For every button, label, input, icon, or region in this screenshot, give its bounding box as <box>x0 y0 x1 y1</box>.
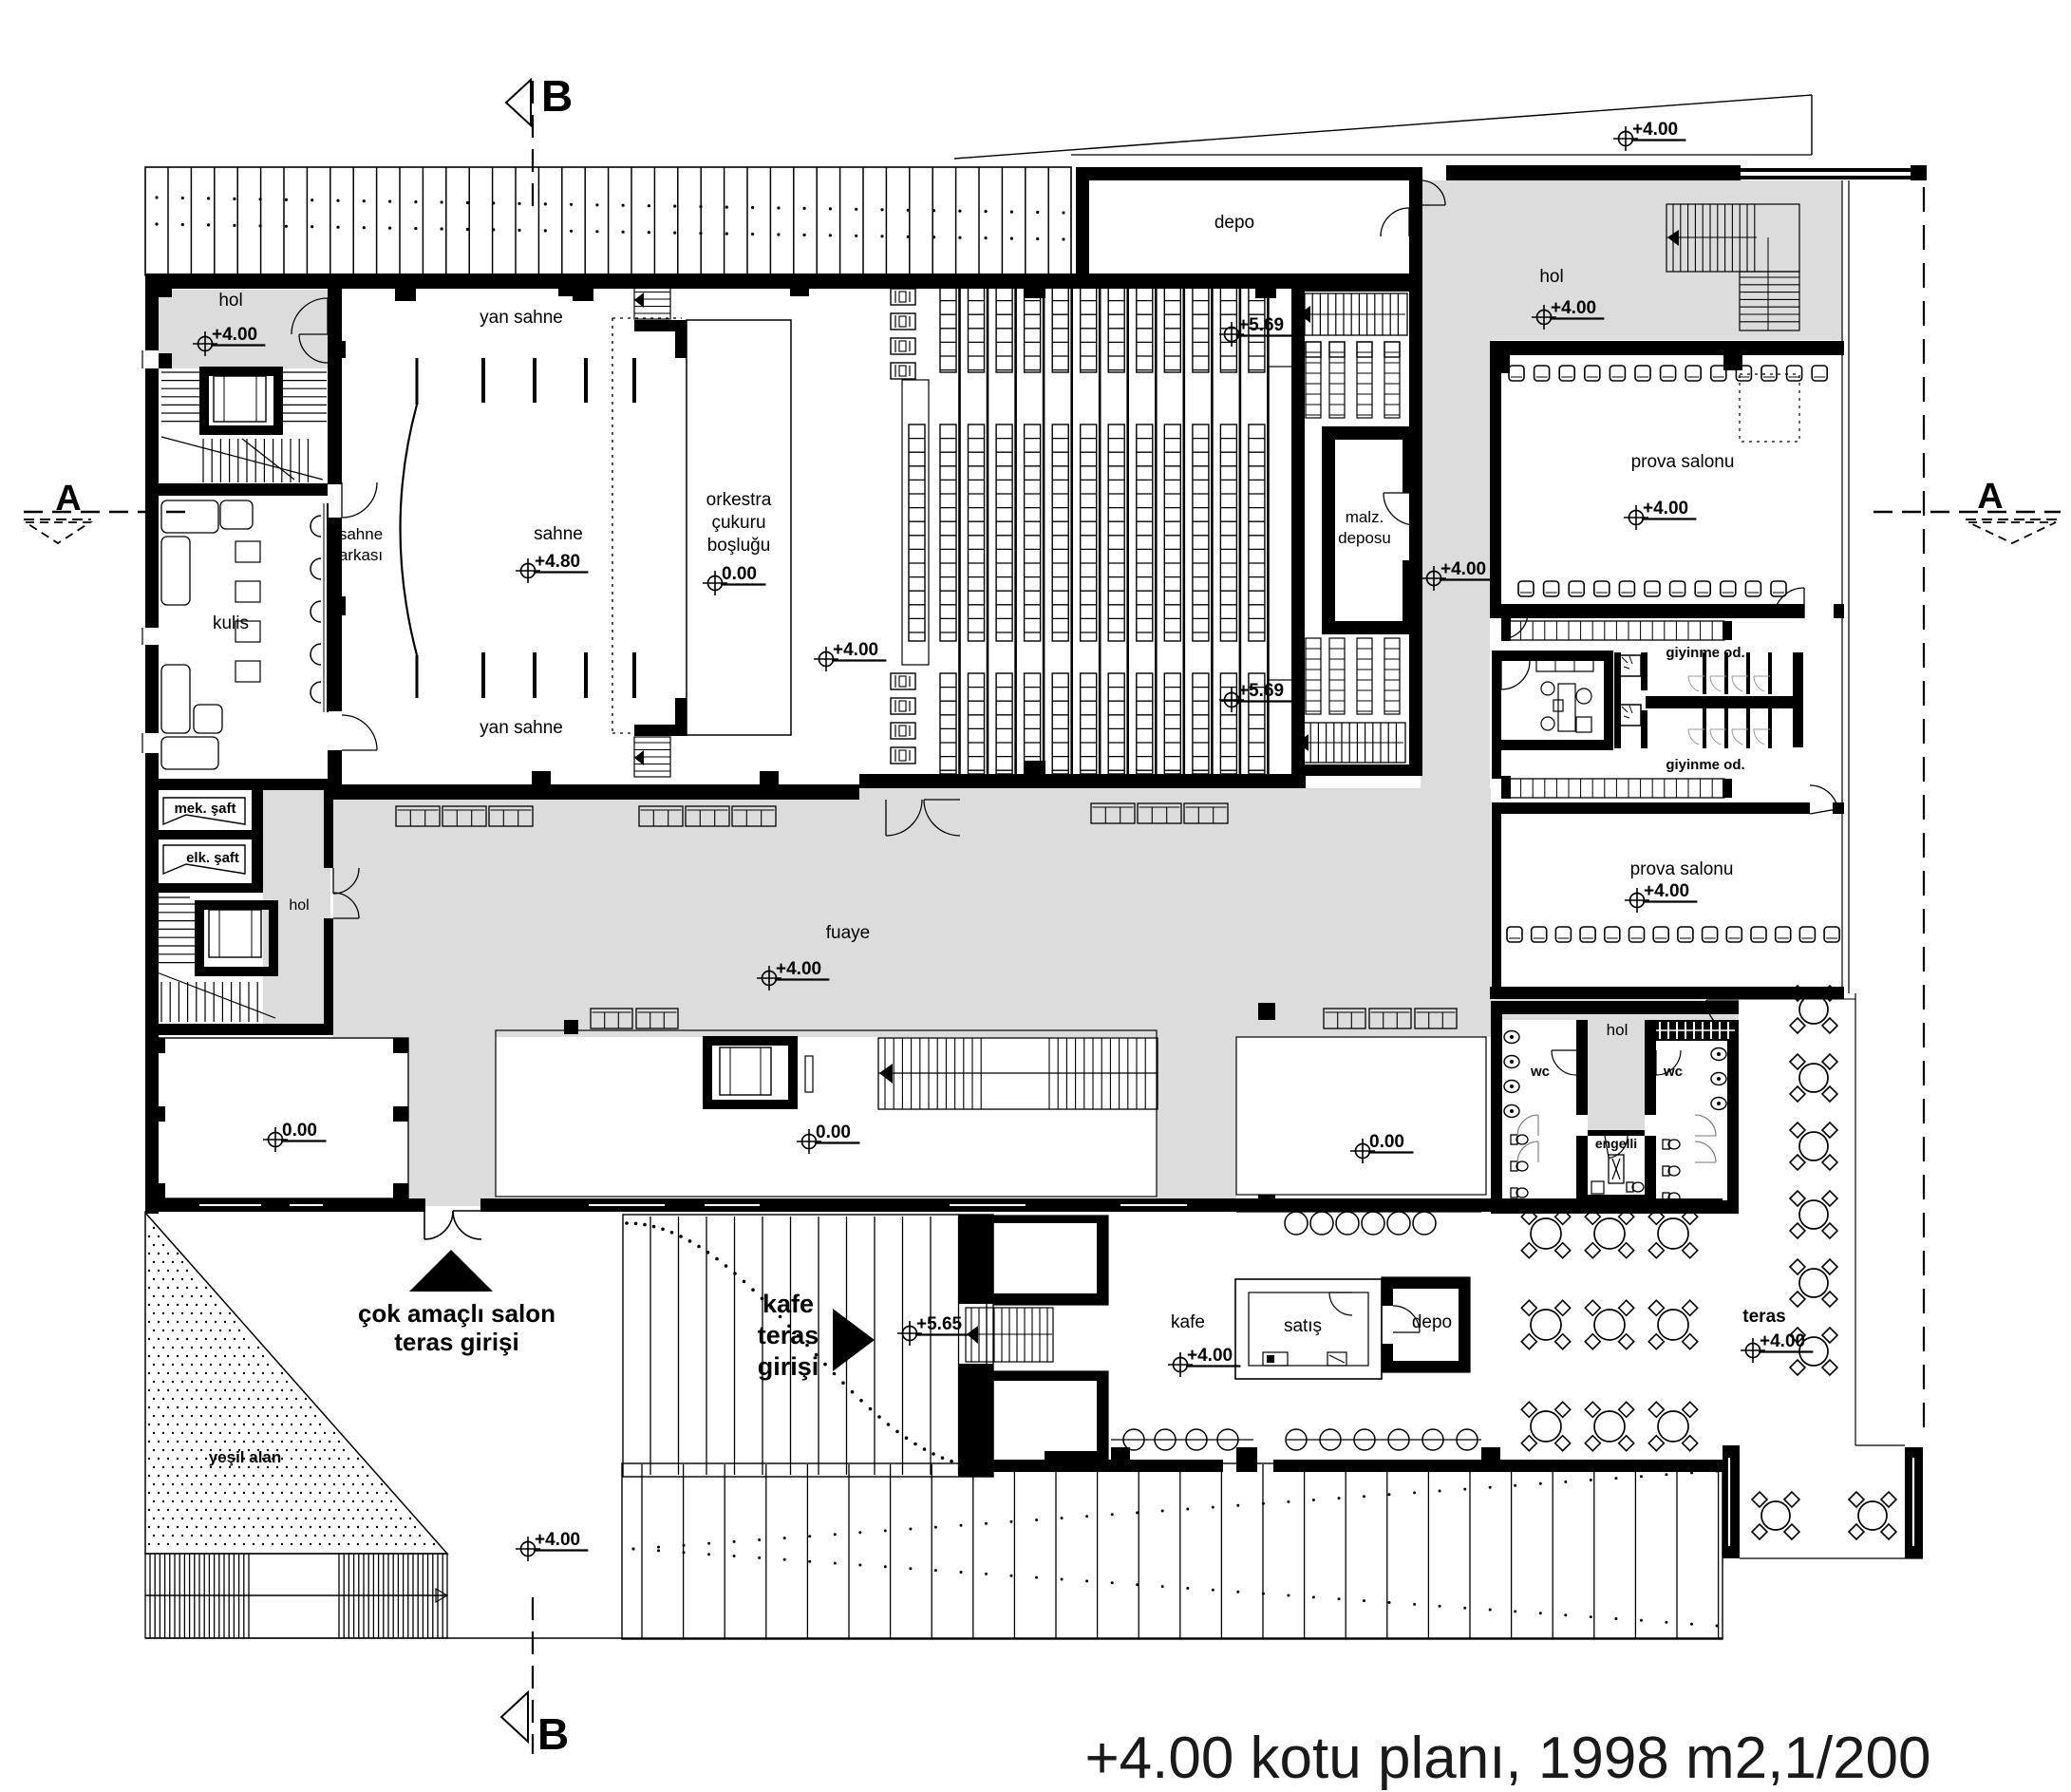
svg-text:depo: depo <box>1214 213 1254 233</box>
svg-text:sahne: sahne <box>339 525 383 543</box>
svg-text:yeşil alan: yeşil alan <box>209 1448 282 1466</box>
svg-text:prova salonu: prova salonu <box>1631 452 1735 472</box>
svg-text:boşluğu: boşluğu <box>707 536 771 556</box>
svg-text:+5.69: +5.69 <box>1238 315 1284 335</box>
svg-text:+4.00: +4.00 <box>1643 499 1688 519</box>
svg-text:+4.00: +4.00 <box>1632 120 1678 140</box>
svg-text:0.00: 0.00 <box>722 564 757 584</box>
svg-text:prova salonu: prova salonu <box>1630 859 1734 879</box>
svg-text:fuaye: fuaye <box>826 923 870 943</box>
svg-text:teras: teras <box>1742 1307 1785 1327</box>
svg-text:arkası: arkası <box>339 546 383 564</box>
svg-text:mek. şaft: mek. şaft <box>174 801 235 817</box>
svg-text:B: B <box>537 1709 569 1759</box>
svg-text:çukuru: çukuru <box>711 513 765 533</box>
svg-text:+4.00: +4.00 <box>535 1530 580 1550</box>
svg-text:satış: satış <box>1284 1316 1322 1336</box>
svg-text:elk. şaft: elk. şaft <box>186 850 239 866</box>
svg-text:kafe: kafe <box>763 1290 814 1318</box>
svg-text:0.00: 0.00 <box>1369 1132 1404 1152</box>
svg-text:çok amaçlı salon: çok amaçlı salon <box>358 1299 555 1328</box>
svg-text:+4.00: +4.00 <box>1187 1346 1233 1366</box>
svg-text:+4.00: +4.00 <box>1440 559 1486 579</box>
svg-text:hol: hol <box>218 291 242 311</box>
svg-text:teras: teras <box>758 1321 819 1349</box>
svg-text:0.00: 0.00 <box>282 1121 317 1141</box>
svg-text:kulis: kulis <box>213 613 249 633</box>
svg-text:wc: wc <box>1663 1064 1683 1080</box>
svg-text:A: A <box>1977 477 2003 517</box>
svg-text:0.00: 0.00 <box>816 1122 851 1142</box>
svg-text:+4.00: +4.00 <box>1551 298 1596 318</box>
svg-text:kafe: kafe <box>1171 1312 1205 1332</box>
svg-text:malz.: malz. <box>1346 508 1384 526</box>
svg-text:depo: depo <box>1412 1312 1452 1332</box>
svg-text:wc: wc <box>1530 1064 1550 1080</box>
svg-text:+4.80: +4.80 <box>535 552 580 572</box>
svg-text:+4.00 kotu planı, 1998 m2,1/20: +4.00 kotu planı, 1998 m2,1/200 <box>1084 1726 1930 1791</box>
svg-text:orkestra: orkestra <box>706 490 772 510</box>
svg-text:B: B <box>541 71 573 121</box>
svg-text:hol: hol <box>289 897 309 914</box>
svg-text:+4.00: +4.00 <box>833 640 878 660</box>
svg-text:hol: hol <box>1607 1021 1629 1039</box>
svg-text:+4.00: +4.00 <box>1760 1331 1805 1351</box>
svg-text:sahne: sahne <box>534 524 583 544</box>
svg-text:deposu: deposu <box>1338 529 1391 547</box>
svg-text:teras girişi: teras girişi <box>394 1328 519 1356</box>
svg-text:+4.00: +4.00 <box>776 959 821 979</box>
svg-text:+5.69: +5.69 <box>1238 681 1284 701</box>
svg-text:hol: hol <box>1539 267 1563 287</box>
svg-text:+4.00: +4.00 <box>1644 881 1689 901</box>
svg-text:engelli: engelli <box>1595 1136 1637 1151</box>
svg-text:yan sahne: yan sahne <box>480 718 563 738</box>
svg-text:+5.65: +5.65 <box>916 1314 963 1334</box>
svg-text:giyinme od.: giyinme od. <box>1666 757 1744 773</box>
svg-text:yan sahne: yan sahne <box>480 308 563 328</box>
svg-text:girişi: girişi <box>758 1352 819 1381</box>
svg-text:+4.00: +4.00 <box>212 325 257 345</box>
